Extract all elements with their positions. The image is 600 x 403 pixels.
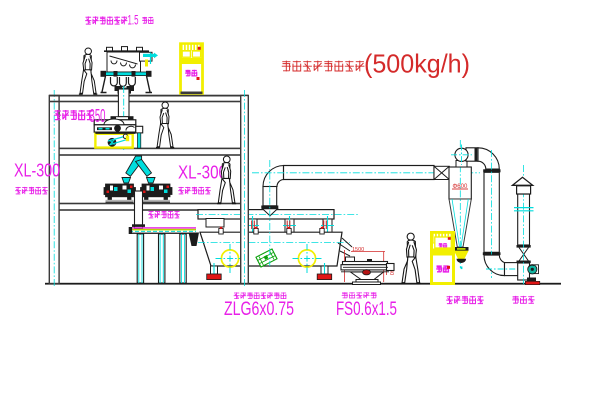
- svg-text:0: 0: [443, 267, 447, 274]
- svg-text:350: 350: [90, 106, 106, 126]
- svg-text:1.5: 1.5: [128, 13, 139, 28]
- svg-text:1500: 1500: [352, 247, 364, 253]
- svg-text:FS0.6x1.5: FS0.6x1.5: [336, 299, 397, 320]
- svg-text:(500kg/h): (500kg/h): [364, 49, 470, 79]
- svg-text:XL-300: XL-300: [178, 163, 227, 183]
- svg-text:ZLG6x0.75: ZLG6x0.75: [224, 299, 294, 320]
- svg-text:XL-300: XL-300: [14, 161, 60, 181]
